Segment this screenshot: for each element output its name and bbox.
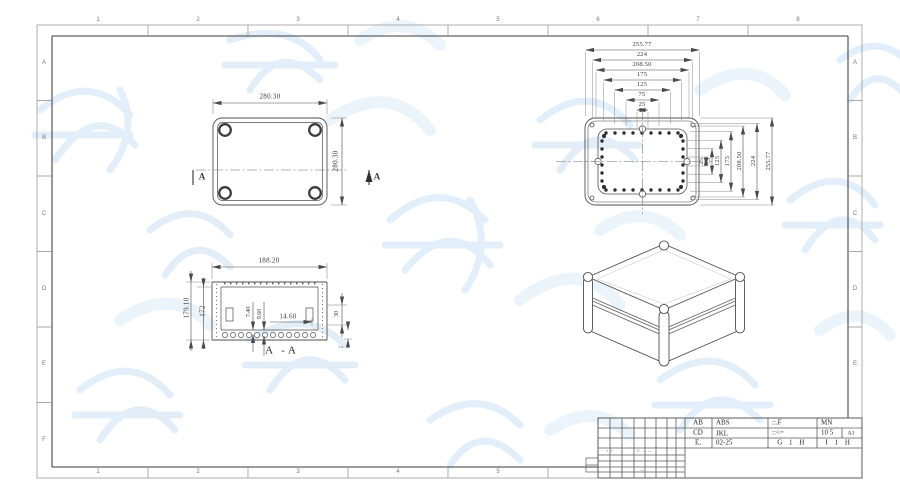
dim-section-base: 2 — [340, 346, 345, 349]
dim-section-width: 188.20 — [258, 258, 279, 265]
corner-post-right — [736, 277, 745, 333]
zone-col-label: 2 — [196, 469, 199, 475]
section-cut-arrows — [193, 170, 369, 185]
dim-lid-right: 255.77 — [766, 151, 773, 170]
revision-mark: · · — [667, 449, 674, 453]
dim-section-boss2: 9.60 — [257, 309, 263, 320]
zone-row-label: B — [42, 135, 46, 141]
zone-row-label: E — [42, 361, 46, 367]
dim-lid-right: 75 — [706, 158, 713, 165]
zone-row-label: C — [42, 211, 46, 217]
titleblock-cell: MN — [821, 420, 832, 427]
drawing-sheet: 1 2 3 4 5 6 7 8 1 2 3 4 5 A B C D E F A … — [0, 0, 900, 500]
title-block — [586, 418, 862, 478]
section-mark-left: A — [199, 173, 206, 182]
titleblock-cell: ::.F — [772, 420, 782, 427]
paper-size-label: A3 — [848, 431, 855, 437]
section-view-title: A -A — [265, 346, 299, 357]
dim-plan-height: 280.30 — [333, 150, 340, 171]
titleblock-cell: ABS — [716, 420, 730, 427]
dim-lid-top: 75 — [639, 92, 646, 99]
dim-section-inner-height: 172 — [200, 305, 207, 316]
cad-linework — [0, 0, 900, 500]
dim-section-flange: 30 — [334, 311, 340, 317]
section-view — [186, 263, 352, 356]
plan-corner-bosses — [219, 124, 321, 199]
dim-section-step: 14.60 — [279, 314, 296, 321]
zone-row-label: B — [853, 135, 857, 141]
corner-post-front — [659, 311, 669, 366]
zone-col-label: 4 — [396, 17, 399, 23]
section-base-holes — [222, 332, 315, 337]
revision-mark: · ▪ ▪ · — [602, 449, 618, 453]
zone-row-label: F — [42, 437, 46, 443]
dim-section-boss1: 7.40 — [246, 307, 252, 318]
zone-row-label: E — [853, 361, 857, 367]
titleblock-cell: I 1 H — [826, 440, 853, 447]
zone-row-label: C — [853, 211, 857, 217]
dim-lid-top: 208.50 — [632, 62, 651, 69]
dim-lid-top: 175 — [637, 72, 647, 79]
zone-row-label: A — [853, 60, 857, 66]
dim-section-outer-height: 179.10 — [184, 297, 191, 318]
zone-col-label: 2 — [196, 17, 199, 23]
corner-boss-top — [659, 241, 668, 250]
dim-lid-top: 224 — [637, 52, 647, 59]
sheet-border — [37, 25, 862, 478]
titleblock-cell: G 1 H — [777, 440, 807, 447]
lid-view — [556, 50, 774, 214]
dim-lid-right: 208.50 — [737, 151, 744, 170]
titleblock-cell: ::<= — [772, 430, 784, 437]
dim-plan-width: 280.30 — [259, 94, 280, 101]
titleblock-cell: E, — [695, 440, 701, 447]
titleblock-cell: 02-25 — [716, 440, 732, 447]
dim-lid-top: 125 — [637, 82, 647, 89]
zone-col-label: 3 — [296, 469, 299, 475]
zone-col-label: 5 — [496, 17, 499, 23]
zone-col-label: 3 — [296, 17, 299, 23]
zone-row-label: A — [42, 60, 46, 66]
zone-col-label: 8 — [796, 17, 799, 23]
corner-post-left — [584, 277, 593, 333]
zone-col-label: 1 — [96, 469, 99, 475]
section-mark-right: A — [374, 173, 381, 182]
zone-col-label: 1 — [96, 17, 99, 23]
titleblock-cell: JKL — [716, 431, 728, 438]
titleblock-cell: AB — [693, 420, 703, 427]
isometric-view — [583, 241, 744, 366]
zone-row-label: D — [853, 286, 857, 292]
dim-lid-right: 125 — [715, 156, 722, 166]
zone-row-label: D — [42, 286, 46, 292]
titleblock-cell: CD — [693, 430, 703, 437]
dim-lid-top: 25 — [639, 102, 646, 109]
dim-lid-right: 175 — [725, 156, 732, 166]
dim-lid-top: 255.77 — [632, 42, 651, 49]
revision-mark: — · — [640, 468, 649, 472]
dim-lid-right: 224 — [751, 156, 758, 166]
plan-view — [193, 99, 369, 205]
titleblock-cell: 10 5 — [821, 430, 833, 437]
zone-col-label: 7 — [696, 17, 699, 23]
section-boss-left — [226, 308, 233, 321]
zone-col-label: 5 — [496, 469, 499, 475]
zone-col-label: 6 — [596, 17, 599, 23]
revision-mark: C —— — [637, 449, 653, 453]
zone-col-label: 4 — [396, 469, 399, 475]
